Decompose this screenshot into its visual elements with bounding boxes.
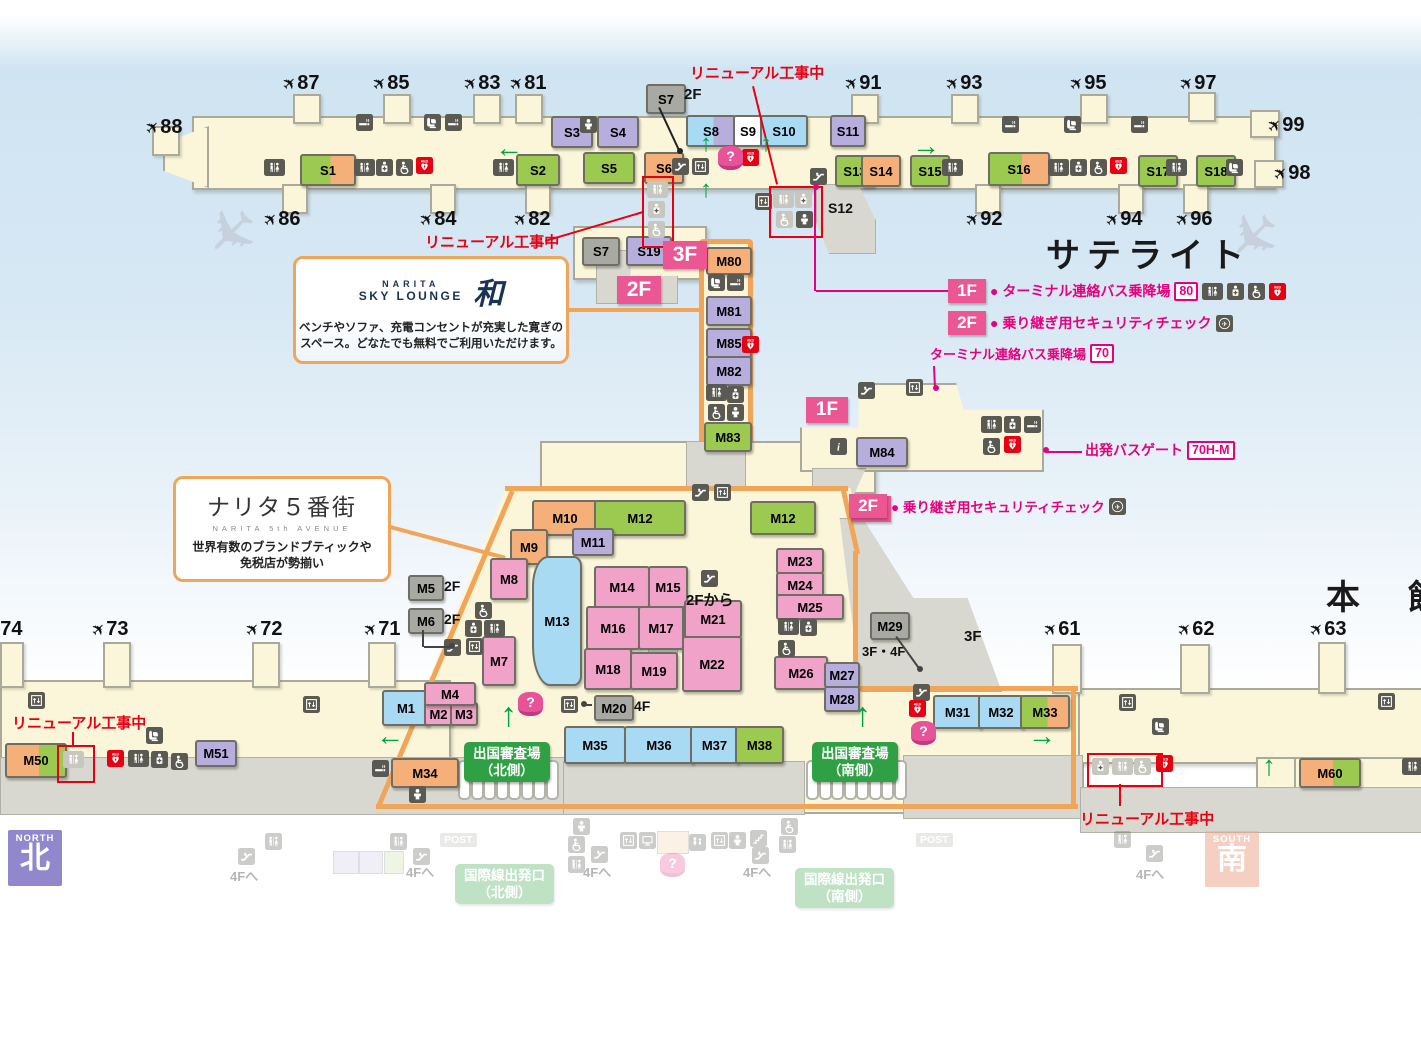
toilet-icon (981, 416, 1002, 433)
transfer-area-s12 (816, 184, 876, 254)
wheelchair-icon (1248, 283, 1265, 300)
sky-lounge-callout: NARITA SKY LOUNGE 和 ベンチやソファ、充電コンセントが充実した… (293, 256, 569, 364)
jet-bridge-stub (368, 642, 396, 688)
ghost-shop-box (384, 851, 404, 874)
gate-61: ✈61 (1044, 618, 1081, 641)
jet-bridge-stub (293, 94, 321, 124)
shop-M36: M36 (624, 726, 694, 764)
shop-M22: M22 (682, 636, 742, 692)
toilet-icon (779, 836, 796, 853)
service-strip-south (903, 755, 1083, 819)
baby-icon (729, 832, 746, 849)
airplane-icon: ✈ (359, 618, 383, 642)
transfer-icon: ✈ (1216, 315, 1233, 332)
firstaid-icon (1070, 159, 1087, 176)
direction-arrow: ← (495, 134, 523, 162)
gate-95: ✈95 (1070, 72, 1107, 95)
connector-dot (917, 666, 923, 672)
security-check-2f: 2F● 乗り継ぎ用セキュリティチェック✈ (849, 494, 1126, 518)
jet-bridge-stub (951, 94, 979, 124)
connector-line (563, 308, 701, 312)
airplane-icon: ✈ (1173, 618, 1197, 642)
toilet-icon (1114, 831, 1131, 848)
toilet-icon (265, 833, 282, 850)
shop-M27: M27 (824, 662, 860, 688)
shop-M84: M84 (856, 437, 908, 467)
elevator-icon (303, 696, 320, 713)
shop-S16: S16 (988, 152, 1050, 186)
aed-icon: AED (1110, 157, 1127, 174)
construction-outline (57, 745, 95, 783)
shop-M19: M19 (630, 652, 678, 690)
jet-bridge-stub (383, 94, 411, 124)
shop-S4: S4 (597, 116, 639, 148)
connector-line (376, 804, 1078, 809)
legend-text: ターミナル連絡バス乗降場 (930, 344, 1086, 363)
svg-text:AED: AED (1115, 160, 1123, 164)
jet-bridge-stub (515, 94, 543, 124)
connector-line (505, 486, 848, 491)
smoking-icon (1002, 116, 1019, 133)
airplane-icon: ✈ (509, 208, 533, 232)
firstaid-icon (727, 386, 744, 403)
airport-floor-map[interactable]: ✈✈S1S2S3S4S5S6S7S8S9S10S11S13S14S15S16S1… (0, 0, 1421, 1060)
floor-badge-2f: 2F (849, 494, 887, 518)
smoking-icon (1131, 116, 1148, 133)
shop-M12: M12 (750, 501, 816, 535)
toilet-icon (778, 618, 799, 635)
escalator-icon (858, 382, 875, 399)
shop-M23: M23 (776, 548, 824, 574)
corner-jp: 北 (8, 844, 62, 874)
jet-bridge-stub (0, 642, 24, 688)
toilet-icon (354, 159, 375, 176)
stairs-icon (750, 830, 767, 847)
firstaid-icon (151, 751, 168, 768)
ghost-label: 4Fへ (583, 862, 611, 881)
svg-text:AED: AED (747, 152, 755, 156)
connector-dot (581, 701, 587, 707)
toilet-icon (706, 384, 727, 401)
information-icon: ? (518, 692, 543, 716)
connector-line (856, 686, 1078, 691)
gate-87: ✈87 (283, 72, 320, 95)
family-icon (689, 834, 706, 851)
shop-M32: M32 (978, 695, 1024, 729)
wheelchair-icon (708, 404, 725, 421)
map-label: 3F・4F (862, 641, 905, 660)
shop-M38: M38 (735, 726, 784, 764)
sky-lounge-desc-1: ベンチやソファ、充電コンセントが充実した寛ぎの (296, 320, 566, 336)
escalator-icon (1146, 845, 1163, 862)
sky-lounge-logo: 和 (473, 269, 503, 313)
connector-line (1119, 784, 1121, 806)
gate-72: ✈72 (246, 618, 283, 641)
airplane-icon: ✈ (505, 72, 529, 96)
stop-number-badge: 70H-M (1187, 441, 1235, 460)
toilet-icon (484, 620, 505, 637)
shop-M83: M83 (704, 422, 752, 452)
escalator-icon (692, 484, 709, 501)
ghost-shop-box (333, 851, 359, 874)
smoking-icon (1024, 416, 1041, 433)
map-label: 3F (964, 628, 982, 645)
airplane-icon: ✈ (1305, 618, 1329, 642)
airplane-icon: ✈ (459, 72, 483, 96)
information-icon: ? (718, 146, 743, 170)
firstaid-icon (800, 619, 817, 636)
shop-M15: M15 (648, 566, 688, 608)
aed-icon: AED (909, 700, 926, 717)
smoking-icon (445, 114, 462, 131)
airplane-icon: ✈ (141, 116, 165, 140)
map-label: 2F (444, 611, 460, 627)
firstaid-icon (376, 159, 393, 176)
gate-84: ✈84 (420, 208, 457, 231)
elevator-icon (714, 484, 731, 501)
aed-icon: AED (416, 157, 433, 174)
shop-S11: S11 (830, 115, 866, 147)
elevator-icon (28, 692, 45, 709)
svg-text:AED: AED (421, 160, 429, 164)
massage-icon (424, 114, 441, 131)
legend-text: ● 乗り継ぎ用セキュリティチェック (990, 313, 1212, 333)
svg-text:✈: ✈ (1114, 502, 1120, 511)
direction-arrow: ↑ (854, 698, 871, 732)
direction-arrow: ↑ (1262, 752, 1276, 780)
ghost-label: 4Fへ (743, 862, 771, 881)
toilet-icon (128, 750, 149, 767)
airplane-icon: ✈ (1039, 618, 1063, 642)
escalator-icon (672, 158, 689, 175)
floor-badge-1f: 1F (948, 279, 986, 303)
stop-number-badge: 70 (1090, 344, 1114, 363)
toilet-icon (1048, 159, 1069, 176)
connector-dot (933, 385, 939, 391)
jet-bridge-stub (103, 642, 131, 688)
floor-badge-2f: 2F (948, 311, 986, 335)
gate-91: ✈91 (845, 72, 882, 95)
baby-icon (409, 786, 426, 803)
airplane-icon: ✈ (87, 618, 111, 642)
shop-M80: M80 (706, 247, 752, 275)
shop-M81: M81 (706, 296, 752, 326)
legend-text: ● 乗り継ぎ用セキュリティチェック (891, 496, 1105, 516)
airplane-icon: ✈ (1175, 72, 1199, 96)
legend-text: ● ターミナル連絡バス乗降場 (990, 281, 1170, 301)
svg-text:AED: AED (112, 753, 120, 757)
shop-S7: S7 (646, 84, 686, 114)
direction-arrow: ← (376, 722, 404, 750)
toilet-icon (390, 833, 407, 850)
corner-jp: 南 (1205, 845, 1259, 875)
floor-badge-1f: 1F (806, 397, 848, 423)
ghost-shop-box (657, 831, 689, 854)
smoking-icon (727, 274, 744, 291)
corner-badge-south: SOUTH南 (1205, 831, 1259, 887)
shop-M35: M35 (564, 726, 626, 764)
baby-icon (580, 116, 597, 133)
fifth-avenue-desc-2: 免税店が勢揃い (176, 555, 388, 571)
shop-M20: M20 (594, 695, 634, 721)
direction-arrow: ↑ (700, 178, 712, 202)
ghost-label: 4Fへ (230, 866, 258, 885)
gate-88: ✈88 (146, 116, 183, 139)
shop-M82: M82 (706, 356, 752, 386)
aed-icon: AED (107, 750, 124, 767)
shop-M11: M11 (572, 528, 614, 556)
information-icon: ? (911, 721, 936, 745)
firstaid-icon (465, 620, 482, 637)
legend-bus-80: 1F● ターミナル連絡バス乗降場80AED (948, 279, 1286, 303)
aed-icon: AED (1269, 283, 1286, 300)
wheelchair-icon (396, 159, 413, 176)
toilet-icon (264, 159, 285, 176)
gate-83: ✈83 (464, 72, 501, 95)
svg-text:AED: AED (747, 339, 755, 343)
information-icon: ? (660, 853, 685, 877)
connector-line (816, 290, 950, 292)
aed-icon: AED (742, 336, 759, 353)
wheelchair-icon (983, 438, 1000, 455)
shop-M60: M60 (1299, 758, 1361, 788)
direction-arrow: → (1028, 722, 1056, 750)
shop-S9: S9 (733, 115, 763, 147)
floor-badge-3f: 3F (663, 241, 707, 269)
elevator-icon (1119, 694, 1136, 711)
gate-98: ✈98 (1274, 162, 1311, 185)
corner-badge-north: NORTH北 (8, 830, 62, 886)
escalator-icon (591, 846, 608, 863)
fifth-avenue-callout: ナリタ５番街 NARITA 5th AVENUE 世界有数のブランドブティックや… (173, 476, 391, 582)
shop-S14: S14 (861, 155, 901, 187)
massage-icon (1152, 718, 1169, 735)
gate-62: ✈62 (1178, 618, 1215, 641)
gate-74: ✈74 (0, 618, 23, 641)
transfer-icon: ✈ (1109, 498, 1126, 515)
shop-M14: M14 (594, 566, 650, 608)
direction-arrow: → (912, 132, 940, 160)
shop-M51: M51 (195, 740, 237, 767)
sky-lounge-desc-2: スペース。どなたでも無料でご利用いただけます。 (296, 336, 566, 352)
shop-S7: S7 (582, 237, 620, 266)
shop-M6: M6 (408, 608, 444, 634)
connector-line (1071, 686, 1076, 808)
shop-M7: M7 (482, 636, 516, 686)
elevator-icon (1378, 693, 1395, 710)
elevator-icon (906, 379, 923, 396)
airplane-icon: ✈ (840, 72, 864, 96)
gate-82: ✈82 (514, 208, 551, 231)
baby-icon (727, 404, 744, 421)
map-label: 2Fから (686, 589, 734, 610)
massage-icon (146, 727, 163, 744)
gate-99: ✈99 (1268, 114, 1305, 137)
construction-label: リニューアル工事中 (690, 62, 824, 83)
massage-icon (708, 274, 725, 291)
map-label: 2F (684, 86, 702, 103)
sky-lounge-brand-bottom: SKY LOUNGE (359, 289, 463, 303)
construction-label: リニューアル工事中 (12, 712, 146, 733)
smoking-icon (356, 114, 373, 131)
immigration-badge: 出国審査場（南側） (812, 742, 898, 782)
shop-S1: S1 (300, 154, 356, 186)
baby-icon (573, 818, 590, 835)
shop-M4: M4 (424, 682, 476, 706)
direction-arrow: ↑ (760, 132, 772, 156)
firstaid-icon (1227, 283, 1244, 300)
connector-dot (1043, 447, 1049, 453)
ghost-departure-gate-badge: 国際線出発口（北側） (455, 864, 554, 904)
connector-line (422, 630, 424, 647)
jet-bridge-stub (1318, 642, 1346, 694)
shop-M29: M29 (870, 612, 910, 640)
toilet-icon (1166, 159, 1187, 176)
jet-bridge-stub (1188, 92, 1216, 122)
map-label: 4F (634, 698, 650, 714)
wheelchair-icon (1090, 159, 1107, 176)
gate-97: ✈97 (1180, 72, 1217, 95)
elevator-icon (692, 158, 709, 175)
construction-outline (642, 176, 674, 248)
airplane-icon: ✈ (0, 618, 5, 642)
connector-dot (813, 184, 819, 190)
gate-71: ✈71 (364, 618, 401, 641)
smoking-icon (372, 760, 389, 777)
airplane-icon: ✈ (961, 208, 985, 232)
ghost-label: 4Fへ (406, 862, 434, 881)
airplane-icon: ✈ (941, 72, 965, 96)
post-label: POST (440, 833, 477, 847)
wheelchair-icon (778, 640, 795, 657)
jet-bridge-stub (1180, 644, 1210, 694)
gate-63: ✈63 (1310, 618, 1347, 641)
departure-bus-gate: 出発バスゲート70H-M (1085, 440, 1235, 460)
toilet-icon (942, 159, 963, 176)
shop-M37: M37 (690, 726, 739, 764)
svg-text:AED: AED (914, 703, 922, 707)
aed-icon: AED (742, 149, 759, 166)
construction-label: リニューアル工事中 (425, 231, 559, 252)
toilet-icon (1402, 758, 1421, 775)
svg-text:i: i (837, 443, 840, 453)
airplane-icon: ✈ (1065, 72, 1089, 96)
connector-line (1046, 451, 1082, 453)
gate-85: ✈85 (373, 72, 410, 95)
ghost-label: 4Fへ (1136, 864, 1164, 883)
aed-icon: AED (1004, 436, 1021, 453)
escalator-icon (810, 168, 827, 185)
escalator-icon (701, 570, 718, 587)
connector-line (72, 732, 74, 746)
airplane-silhouette: ✈ (187, 188, 278, 279)
shop-M31: M31 (933, 695, 982, 729)
wheelchair-icon (475, 602, 492, 619)
svg-text:AED: AED (1009, 439, 1017, 443)
wheelchair-icon (781, 818, 798, 835)
wheelchair-icon (171, 753, 188, 770)
elevator-icon (711, 832, 728, 849)
shop-M34: M34 (391, 758, 459, 788)
elevator-icon (620, 832, 637, 849)
floor-badge-2f: 2F (617, 276, 661, 304)
gate-86: ✈86 (264, 208, 301, 231)
airplane-icon: ✈ (241, 618, 265, 642)
construction-outline (1087, 753, 1163, 787)
construction-label: リニューアル工事中 (1080, 808, 1214, 829)
ghost-shop-box (359, 851, 383, 874)
ghost-departure-gate-badge: 国際線出発口（南側） (795, 868, 894, 908)
stop-number-badge: 80 (1174, 282, 1198, 301)
post-label: POST (916, 833, 953, 847)
connector-line (814, 188, 816, 291)
area-title: 本 館 (1326, 570, 1421, 619)
fifth-avenue-title: ナリタ５番街 (207, 494, 357, 520)
elevator-icon (561, 696, 578, 713)
shop-M26: M26 (774, 656, 828, 690)
direction-arrow: ↑ (500, 698, 517, 732)
massage-icon (1226, 159, 1243, 176)
firstaid-icon (1004, 416, 1021, 433)
toilet-icon (1202, 283, 1223, 300)
fifth-avenue-desc-1: 世界有数のブランドブティックや (176, 539, 388, 555)
airplane-icon: ✈ (278, 72, 302, 96)
connector-dot (677, 148, 683, 154)
airplane-icon: ✈ (368, 72, 392, 96)
connector-dot (449, 643, 455, 649)
elevator-icon (466, 638, 483, 655)
shop-M18: M18 (584, 648, 632, 690)
monitor-icon (639, 832, 656, 849)
legend-text: 出発バスゲート (1085, 440, 1183, 460)
direction-arrow: ↑ (700, 132, 712, 156)
fifth-avenue-subtitle: NARITA 5th AVENUE (176, 524, 388, 533)
map-label: 2F (444, 578, 460, 594)
shop-S5: S5 (583, 152, 635, 184)
shop-M8: M8 (490, 558, 528, 600)
escalator-icon (238, 848, 255, 865)
jet-bridge-stub (1080, 94, 1108, 124)
immigration-badge: 出国審査場（北側） (464, 742, 550, 782)
shop-M13: M13 (532, 556, 582, 686)
map-label: S12 (828, 200, 853, 216)
gate-81: ✈81 (510, 72, 547, 95)
shop-M25: M25 (776, 594, 844, 620)
gate-92: ✈92 (966, 208, 1003, 231)
jet-bridge-stub (252, 642, 280, 688)
connector-line (424, 646, 450, 648)
sky-lounge-brand-top: NARITA (359, 279, 463, 289)
airplane-icon: ✈ (415, 208, 439, 232)
info-icon: i (830, 438, 847, 455)
gate-73: ✈73 (92, 618, 129, 641)
shop-M5: M5 (408, 575, 444, 601)
shop-M16: M16 (586, 606, 640, 650)
escalator-icon (913, 684, 930, 701)
bus-stop-70: ターミナル連絡バス乗降場70 (930, 344, 1114, 363)
area-title: サテライト (1046, 228, 1251, 277)
svg-text:✈: ✈ (1221, 319, 1227, 328)
shop-M17: M17 (638, 606, 684, 650)
wheelchair-icon (568, 836, 585, 853)
legend-security-2f: 2F● 乗り継ぎ用セキュリティチェック✈ (948, 311, 1233, 335)
gate-93: ✈93 (946, 72, 983, 95)
jet-bridge-stub (473, 94, 501, 124)
svg-text:AED: AED (1274, 285, 1282, 289)
massage-icon (1064, 116, 1081, 133)
